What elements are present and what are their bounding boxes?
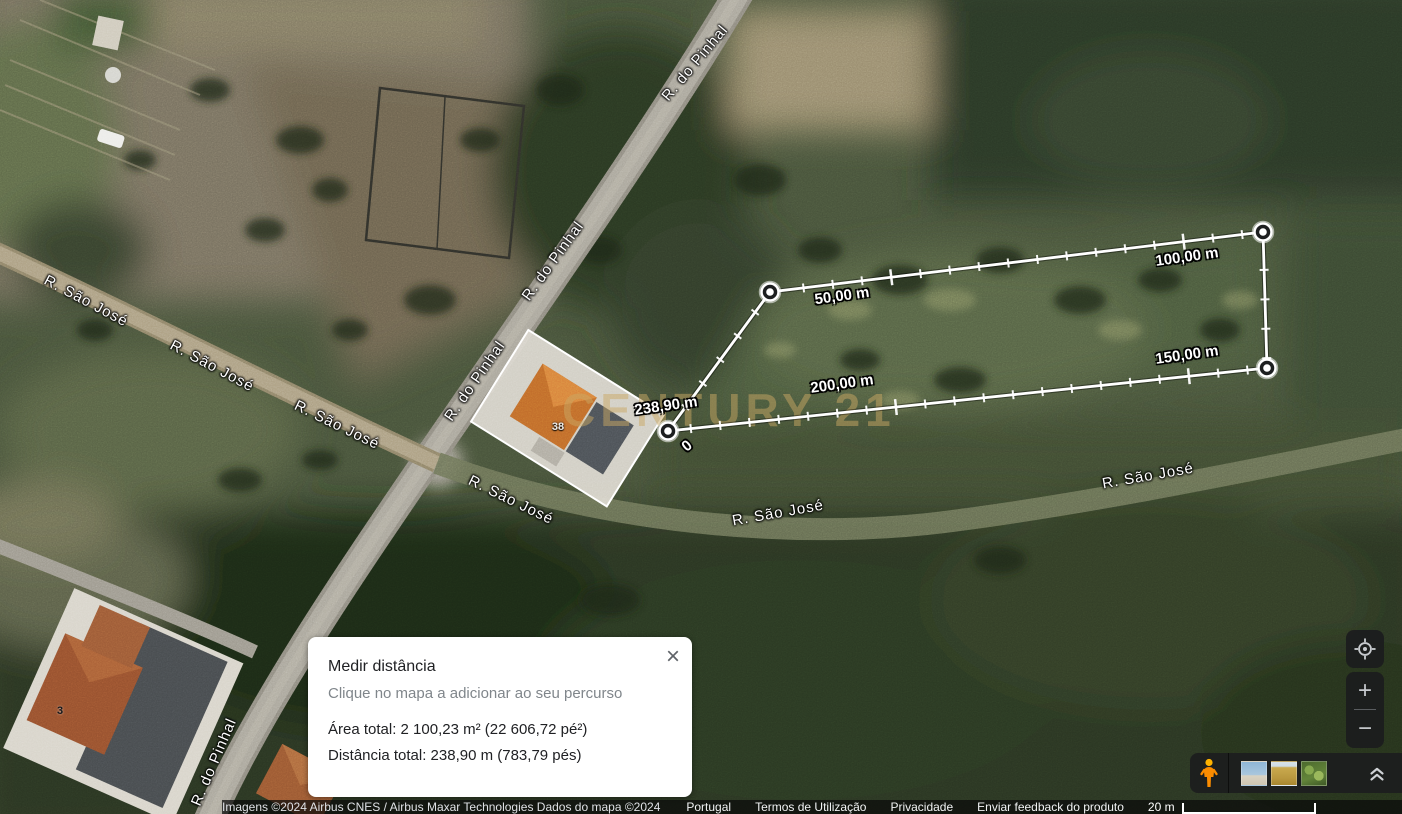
measure-vertex[interactable] (1253, 222, 1274, 243)
imagery-bar (1190, 753, 1402, 793)
measure-vertex[interactable] (658, 421, 679, 442)
zoom-out-button[interactable]: − (1346, 710, 1384, 747)
measure-distance-panel: × Medir distância Clique no mapa a adici… (308, 637, 692, 797)
panel-subtitle: Clique no mapa a adicionar ao seu percur… (328, 684, 672, 704)
measure-vertex[interactable] (1257, 358, 1278, 379)
footer-link[interactable]: Enviar feedback do produto (977, 800, 1124, 814)
footer-link[interactable]: Portugal (686, 800, 731, 814)
panel-title: Medir distância (328, 657, 672, 677)
zoom-control: + − (1346, 672, 1384, 748)
bar-divider (1228, 753, 1229, 793)
pegman-icon[interactable] (1197, 757, 1221, 789)
map-canvas[interactable]: CENTURY 21 R. do PinhalR. do PinhalR. do… (0, 0, 1402, 814)
area-total-line: Área total: 2 100,23 m² (22 606,72 pé²) (328, 720, 672, 740)
footer-links: PortugalTermos de UtilizaçãoPrivacidadeE… (686, 800, 1148, 814)
measure-vertex[interactable] (760, 282, 781, 303)
field-imagery-thumbnail[interactable] (1271, 761, 1297, 786)
scale-label: 20 m (1148, 800, 1175, 814)
imagery-thumbnails (1241, 761, 1327, 786)
scale-bar (1182, 803, 1316, 814)
close-icon[interactable]: × (666, 645, 680, 669)
map-attribution: Imagens ©2024 Airbus CNES / Airbus Maxar… (222, 800, 660, 814)
forest-imagery-thumbnail[interactable] (1301, 761, 1327, 786)
my-location-icon (1354, 638, 1376, 660)
collapse-chevron-icon[interactable] (1364, 760, 1390, 786)
coast-imagery-thumbnail[interactable] (1241, 761, 1267, 786)
distance-total-line: Distância total: 238,90 m (783,79 pés) (328, 746, 672, 766)
footer-link[interactable]: Termos de Utilização (755, 800, 866, 814)
measurement-overlay (0, 0, 1402, 814)
my-location-button[interactable] (1346, 630, 1384, 668)
footer-link[interactable]: Privacidade (890, 800, 953, 814)
attribution-bar: Imagens ©2024 Airbus CNES / Airbus Maxar… (222, 800, 1402, 814)
zoom-in-button[interactable]: + (1346, 672, 1384, 709)
